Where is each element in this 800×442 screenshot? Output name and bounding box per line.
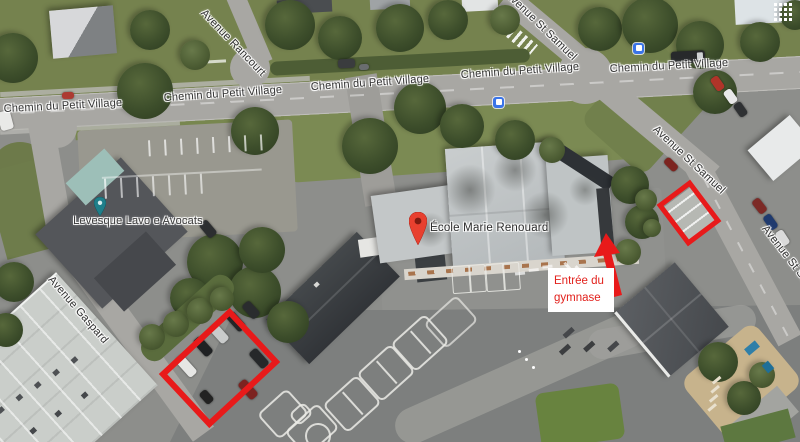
poi-label-law-firm[interactable]: Levesque Lavo e Avocats	[73, 215, 203, 227]
gym-entrance-note-line2: gymnase	[554, 290, 608, 307]
grass-patch	[535, 382, 626, 442]
gym-entrance-note-line1: Entrée du	[554, 273, 608, 290]
bus-stop-icon[interactable]	[493, 97, 504, 108]
school-pin-marker[interactable]	[409, 212, 427, 246]
poi-pin-marker[interactable]	[94, 197, 106, 217]
poi-label-school[interactable]: École Marie Renouard	[430, 222, 548, 234]
building-house-nw	[49, 5, 117, 58]
gym-entrance-note: Entrée du gymnase	[548, 268, 614, 312]
bus-stop-icon[interactable]	[633, 43, 644, 54]
rooftop-grid-icon	[774, 3, 777, 6]
satellite-map[interactable]: Entrée du gymnase Chemin du Petit Villag…	[0, 0, 800, 442]
